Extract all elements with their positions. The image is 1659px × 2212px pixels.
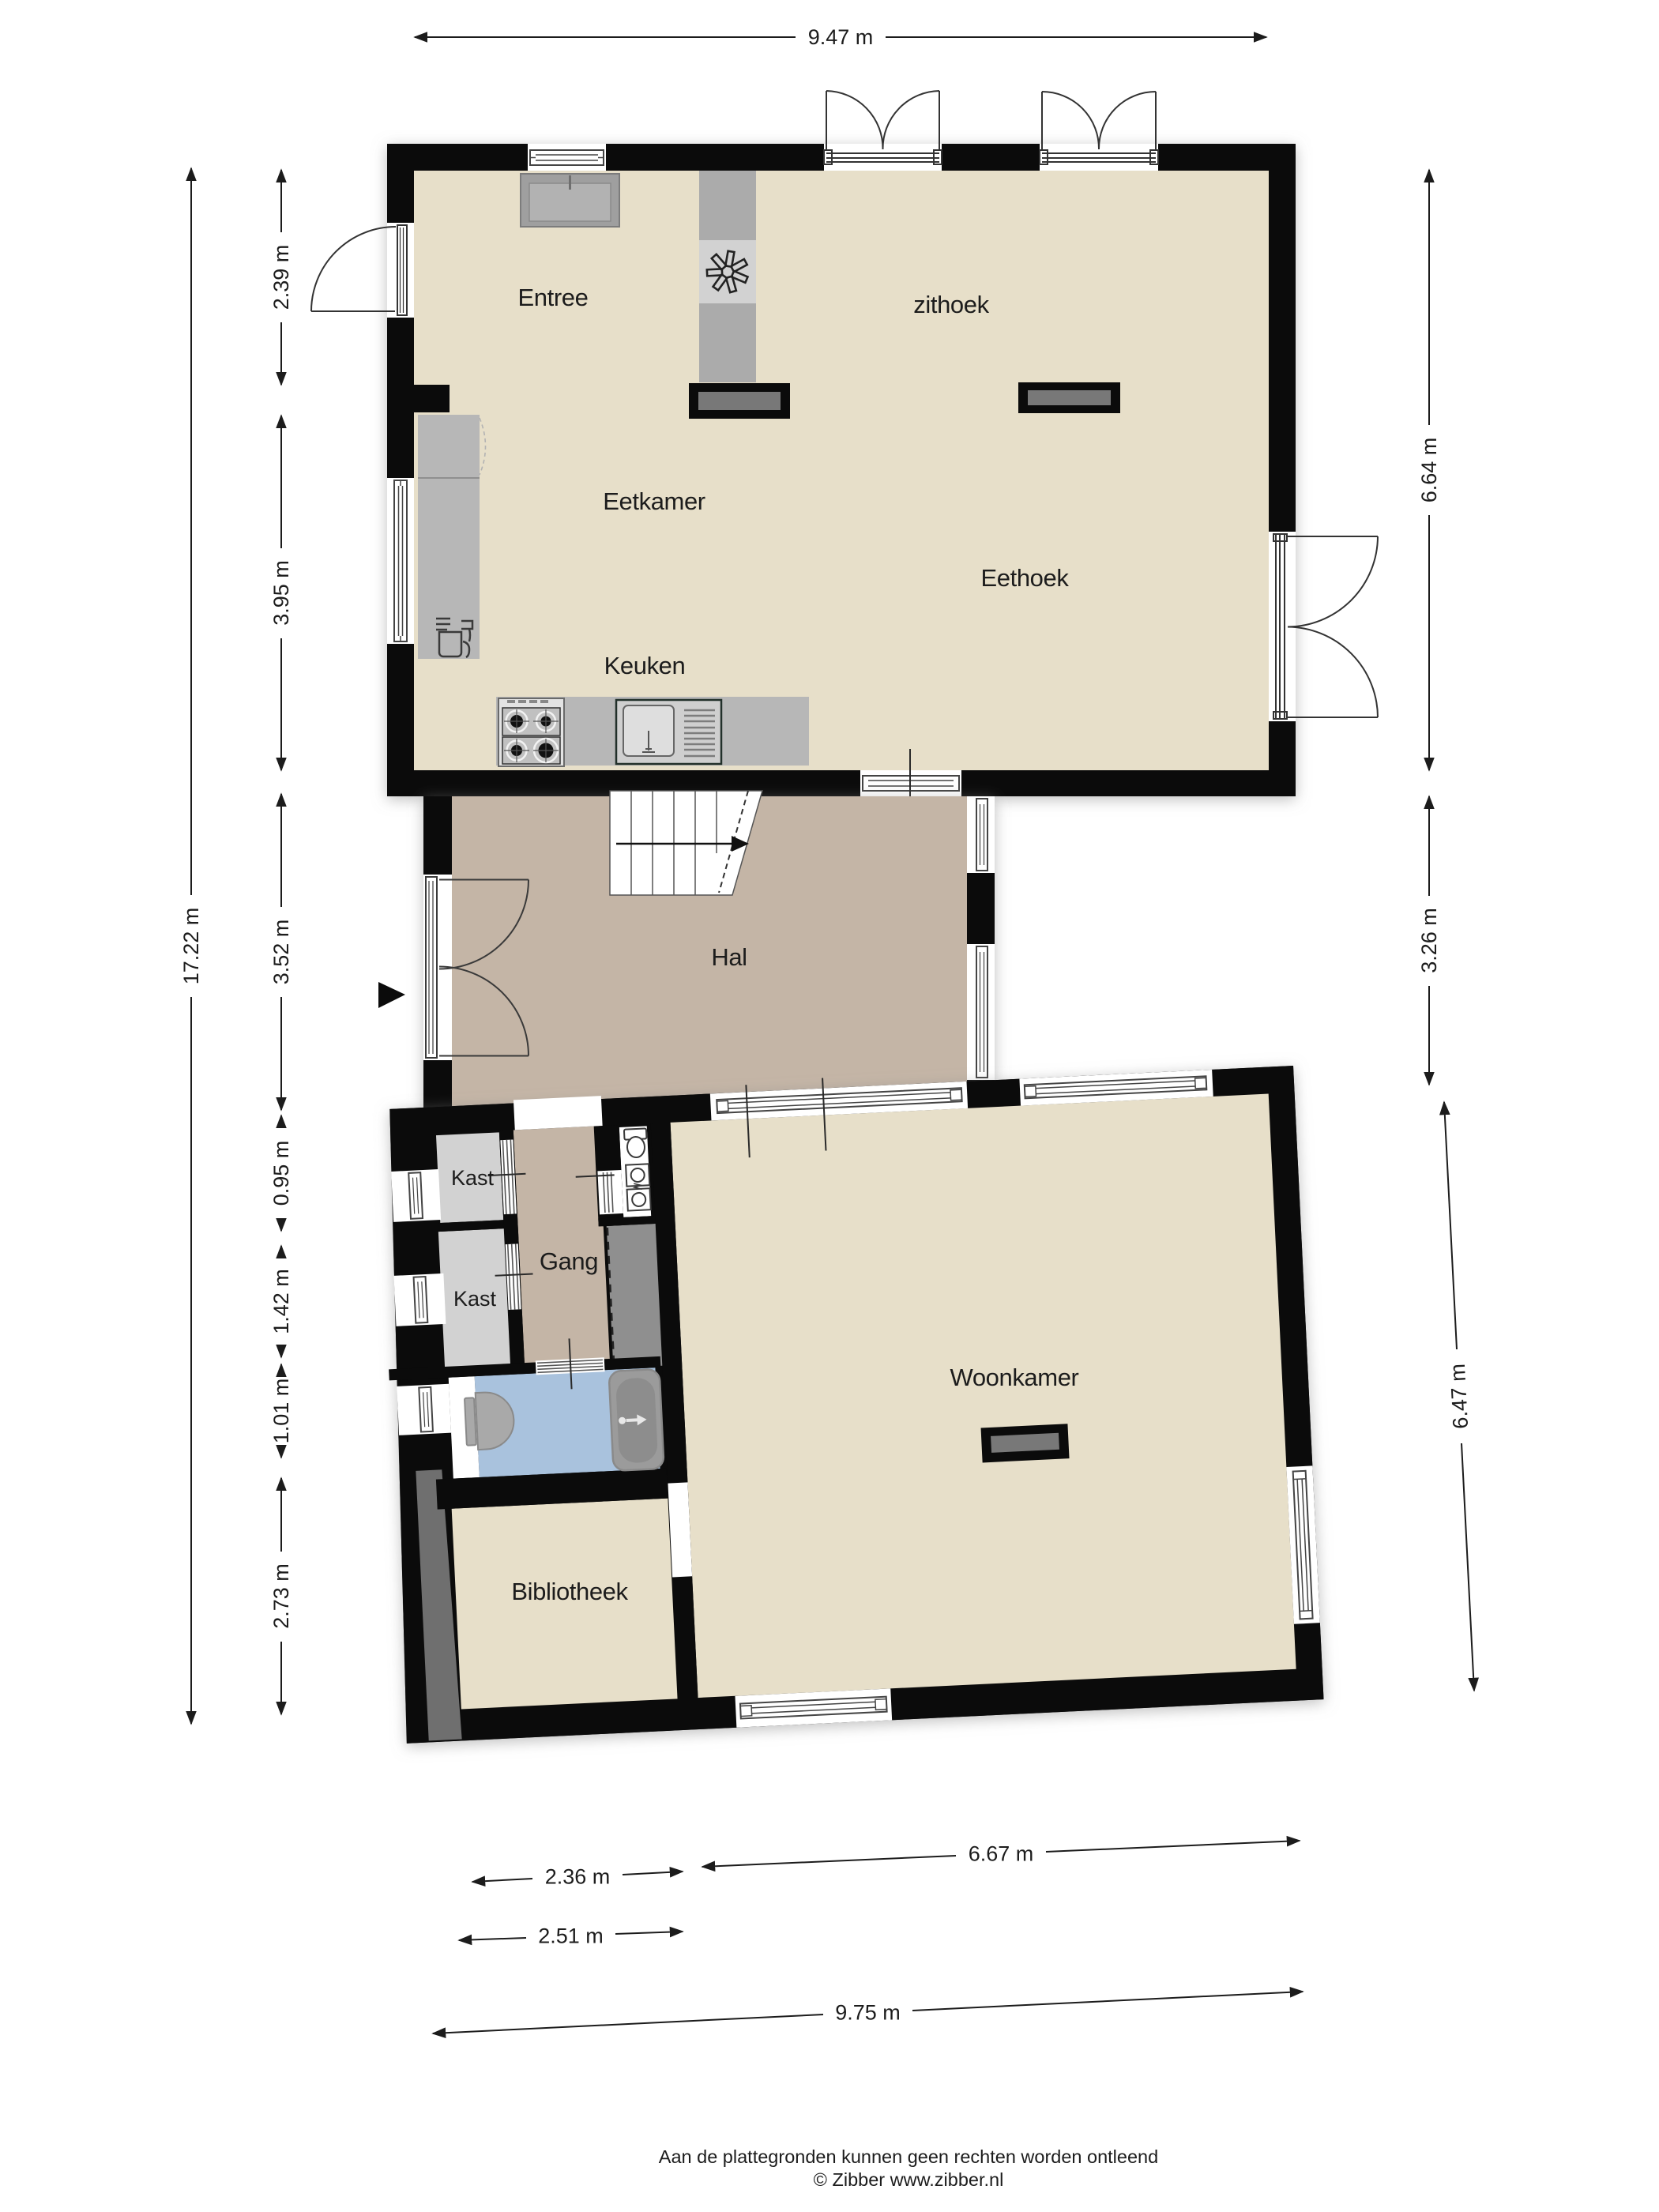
svg-text:Kast: Kast	[451, 1166, 495, 1190]
svg-text:9.47 m: 9.47 m	[808, 25, 874, 49]
svg-text:2.51 m: 2.51 m	[538, 1924, 604, 1948]
svg-text:17.22 m: 17.22 m	[179, 908, 203, 985]
svg-text:3.26 m: 3.26 m	[1417, 908, 1441, 973]
svg-text:1.42 m: 1.42 m	[269, 1269, 293, 1334]
svg-text:3.95 m: 3.95 m	[269, 560, 293, 626]
svg-text:2.36 m: 2.36 m	[545, 1865, 611, 1889]
svg-text:9.75 m: 9.75 m	[835, 2001, 901, 2025]
svg-text:6.67 m: 6.67 m	[969, 1842, 1034, 1866]
svg-text:1.01 m: 1.01 m	[269, 1379, 293, 1444]
svg-text:Bibliotheek: Bibliotheek	[511, 1578, 628, 1605]
svg-text:Gang: Gang	[540, 1247, 598, 1275]
svg-text:© Zibber www.zibber.nl: © Zibber www.zibber.nl	[814, 2169, 1004, 2190]
svg-text:Aan de plattegronden kunnen ge: Aan de plattegronden kunnen geen rechten…	[659, 2146, 1158, 2167]
svg-text:Woonkamer: Woonkamer	[950, 1364, 1079, 1391]
svg-text:2.39 m: 2.39 m	[269, 245, 293, 310]
svg-text:6.64 m: 6.64 m	[1417, 438, 1441, 503]
svg-text:2.73 m: 2.73 m	[269, 1563, 293, 1629]
svg-text:0.95 m: 0.95 m	[269, 1141, 293, 1206]
svg-text:6.47 m: 6.47 m	[1446, 1364, 1473, 1430]
svg-text:Keuken: Keuken	[604, 652, 686, 679]
svg-text:Eethoek: Eethoek	[981, 564, 1070, 592]
svg-text:Hal: Hal	[711, 943, 747, 971]
svg-text:3.52 m: 3.52 m	[269, 920, 293, 985]
svg-text:Eetkamer: Eetkamer	[603, 487, 705, 515]
svg-text:Entree: Entree	[518, 284, 589, 311]
svg-text:zithoek: zithoek	[913, 291, 989, 318]
svg-text:Kast: Kast	[453, 1287, 497, 1311]
